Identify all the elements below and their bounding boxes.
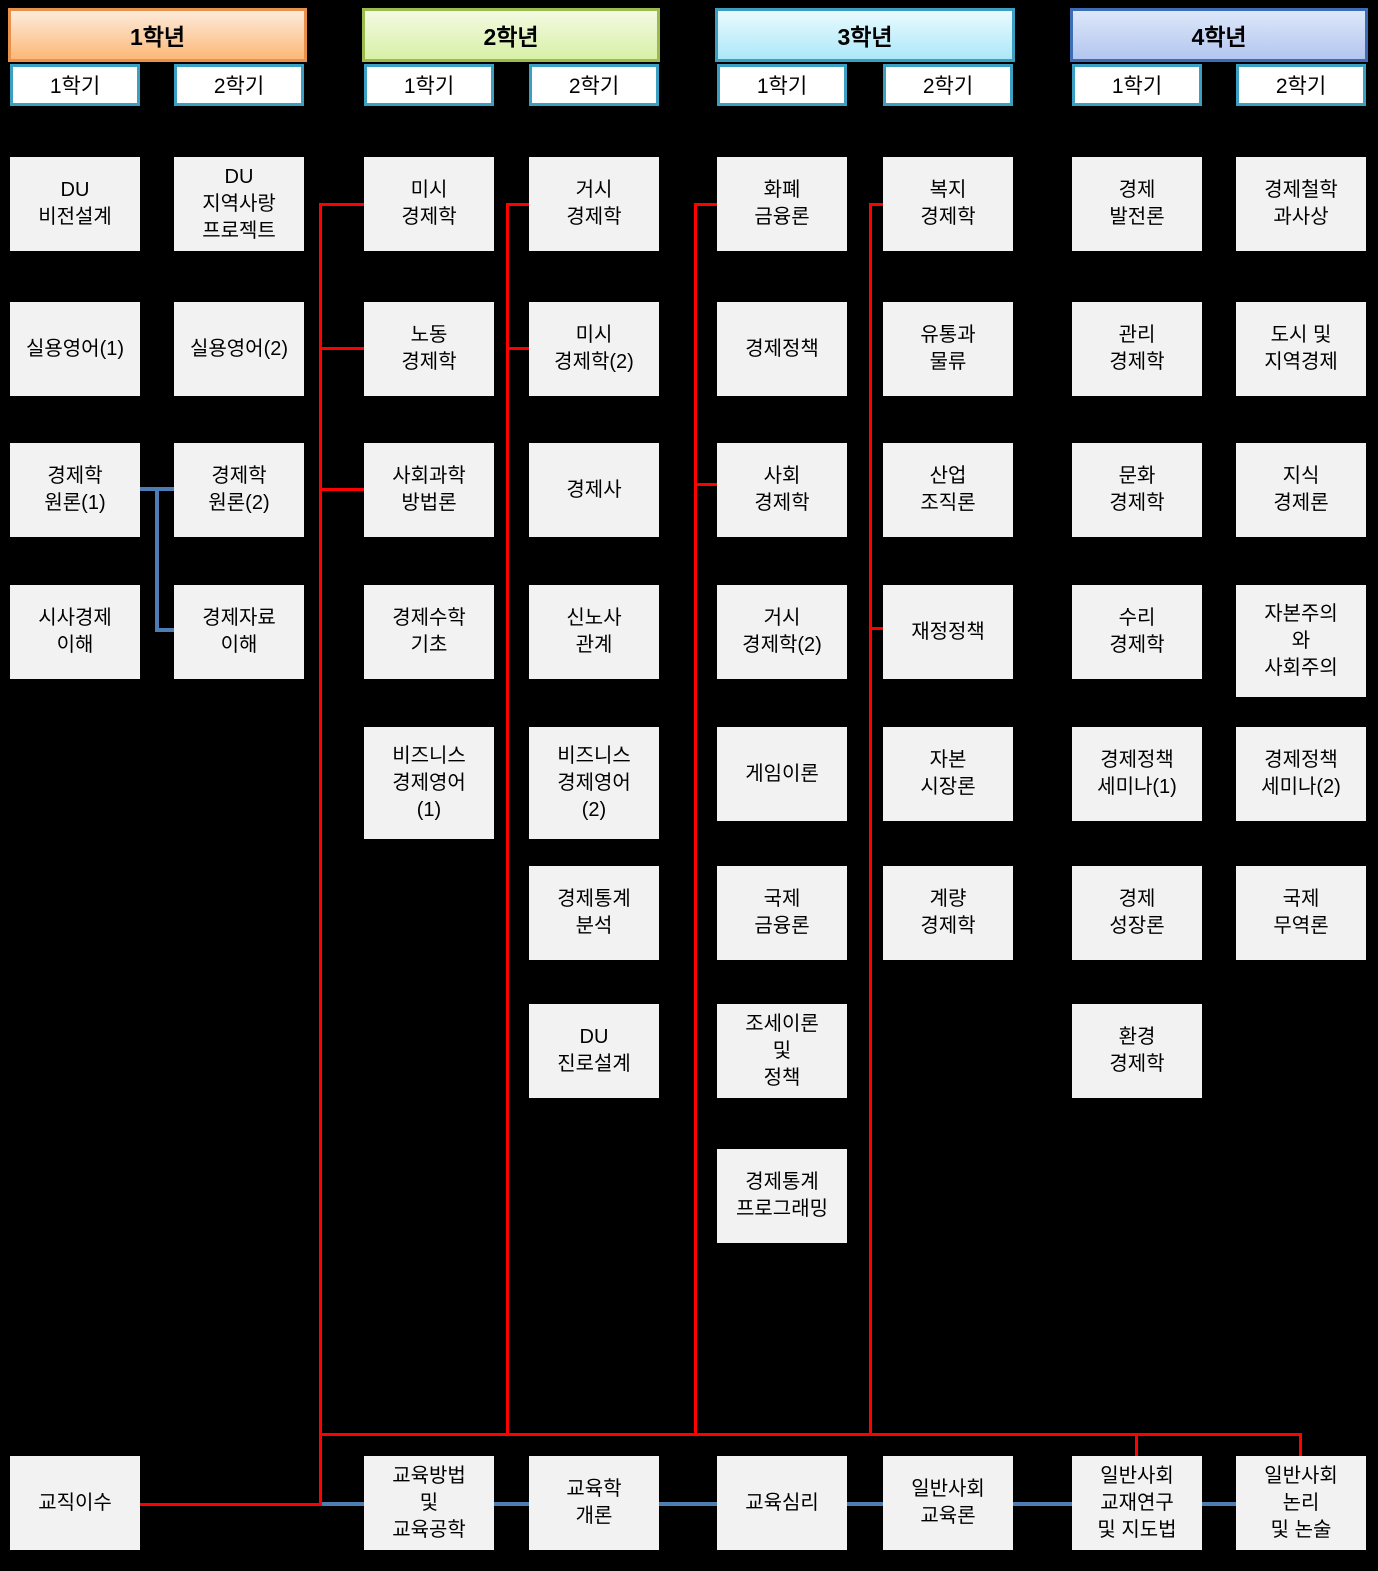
course-box: DU 진로설계: [529, 1004, 659, 1098]
course-box: 경제 발전론: [1072, 157, 1202, 251]
prerequisite-line-red: [319, 347, 367, 350]
course-box: 비즈니스 경제영어 (1): [364, 727, 494, 839]
course-box: 환경 경제학: [1072, 1004, 1202, 1098]
course-box: DU 비전설계: [10, 157, 140, 251]
teacher-track-course-box: 교직이수: [10, 1456, 140, 1550]
course-box: 경제학 원론(1): [10, 443, 140, 537]
course-box: 미시 경제학: [364, 157, 494, 251]
linked-course-line-blue: [1013, 1502, 1072, 1506]
teacher-track-course-box: 일반사회 논리 및 논술: [1236, 1456, 1366, 1550]
course-box: 경제정책 세미나(2): [1236, 727, 1366, 821]
year-header-4: 4학년: [1070, 8, 1368, 62]
course-box: 거시 경제학(2): [717, 585, 847, 679]
teacher-track-course-box: 교육심리: [717, 1456, 847, 1550]
linked-course-line-blue: [322, 1502, 364, 1506]
course-box: 경제정책 세미나(1): [1072, 727, 1202, 821]
course-box: 경제학 원론(2): [174, 443, 304, 537]
linked-course-line-blue: [155, 487, 159, 632]
course-box: 국제 금융론: [717, 866, 847, 960]
course-box: 경제통계 분석: [529, 866, 659, 960]
course-box: 시사경제 이해: [10, 585, 140, 679]
course-box: 계량 경제학: [883, 866, 1013, 960]
linked-course-line-blue: [1202, 1502, 1236, 1506]
course-box: 노동 경제학: [364, 302, 494, 396]
teacher-track-course-box: 교육방법 및 교육공학: [364, 1456, 494, 1550]
linked-course-line-blue: [155, 628, 174, 632]
course-box: 실용영어(2): [174, 302, 304, 396]
course-box: 자본주의 와 사회주의: [1236, 585, 1366, 697]
prerequisite-line-red: [506, 203, 509, 1436]
course-box: 화폐 금융론: [717, 157, 847, 251]
course-box: 수리 경제학: [1072, 585, 1202, 679]
course-box: 복지 경제학: [883, 157, 1013, 251]
prerequisite-line-red: [319, 488, 367, 491]
year-header-2: 2학년: [362, 8, 660, 62]
semester-tab-y1-s2: 2학기: [174, 64, 304, 106]
course-box: 경제통계 프로그래밍: [717, 1149, 847, 1243]
teacher-track-course-box: 일반사회 교재연구 및 지도법: [1072, 1456, 1202, 1550]
year-header-3: 3학년: [715, 8, 1015, 62]
semester-tab-y3-s2: 2학기: [883, 64, 1013, 106]
prerequisite-line-red: [319, 203, 367, 206]
course-box: 유통과 물류: [883, 302, 1013, 396]
course-box: 문화 경제학: [1072, 443, 1202, 537]
course-box: 도시 및 지역경제: [1236, 302, 1366, 396]
course-box: 신노사 관계: [529, 585, 659, 679]
course-box: 경제수학 기초: [364, 585, 494, 679]
course-box: 비즈니스 경제영어 (2): [529, 727, 659, 839]
semester-tab-y2-s1: 1학기: [364, 64, 494, 106]
course-box: 경제철학 과사상: [1236, 157, 1366, 251]
course-box: 관리 경제학: [1072, 302, 1202, 396]
prerequisite-line-red: [140, 1503, 322, 1506]
linked-course-line-blue: [494, 1502, 529, 1506]
semester-tab-y4-s1: 1학기: [1072, 64, 1202, 106]
prerequisite-line-red: [319, 203, 322, 1506]
semester-tab-y3-s1: 1학기: [717, 64, 847, 106]
prerequisite-line-red: [869, 203, 872, 1436]
course-box: 미시 경제학(2): [529, 302, 659, 396]
course-box: 경제정책: [717, 302, 847, 396]
course-box: 국제 무역론: [1236, 866, 1366, 960]
semester-tab-y4-s2: 2학기: [1236, 64, 1366, 106]
course-box: 사회 경제학: [717, 443, 847, 537]
course-box: 경제 성장론: [1072, 866, 1202, 960]
semester-tab-y2-s2: 2학기: [529, 64, 659, 106]
semester-tab-y1-s1: 1학기: [10, 64, 140, 106]
course-box: DU 지역사랑 프로젝트: [174, 157, 304, 251]
curriculum-flowchart: 1학년 2학년 3학년 4학년 1학기 2학기 1학기 2학기 1학기 2학기 …: [0, 0, 1378, 1571]
teacher-track-course-box: 교육학 개론: [529, 1456, 659, 1550]
course-box: 조세이론 및 정책: [717, 1004, 847, 1098]
course-box: 거시 경제학: [529, 157, 659, 251]
linked-course-line-blue: [659, 1502, 717, 1506]
course-box: 산업 조직론: [883, 443, 1013, 537]
course-box: 지식 경제론: [1236, 443, 1366, 537]
year-header-1: 1학년: [8, 8, 307, 62]
course-box: 경제자료 이해: [174, 585, 304, 679]
prerequisite-line-red: [694, 203, 697, 1436]
course-box: 자본 시장론: [883, 727, 1013, 821]
prerequisite-line-red: [319, 1433, 1302, 1436]
course-box: 사회과학 방법론: [364, 443, 494, 537]
course-box: 경제사: [529, 443, 659, 537]
teacher-track-course-box: 일반사회 교육론: [883, 1456, 1013, 1550]
linked-course-line-blue: [847, 1502, 883, 1506]
course-box: 재정정책: [883, 585, 1013, 679]
course-box: 실용영어(1): [10, 302, 140, 396]
course-box: 게임이론: [717, 727, 847, 821]
